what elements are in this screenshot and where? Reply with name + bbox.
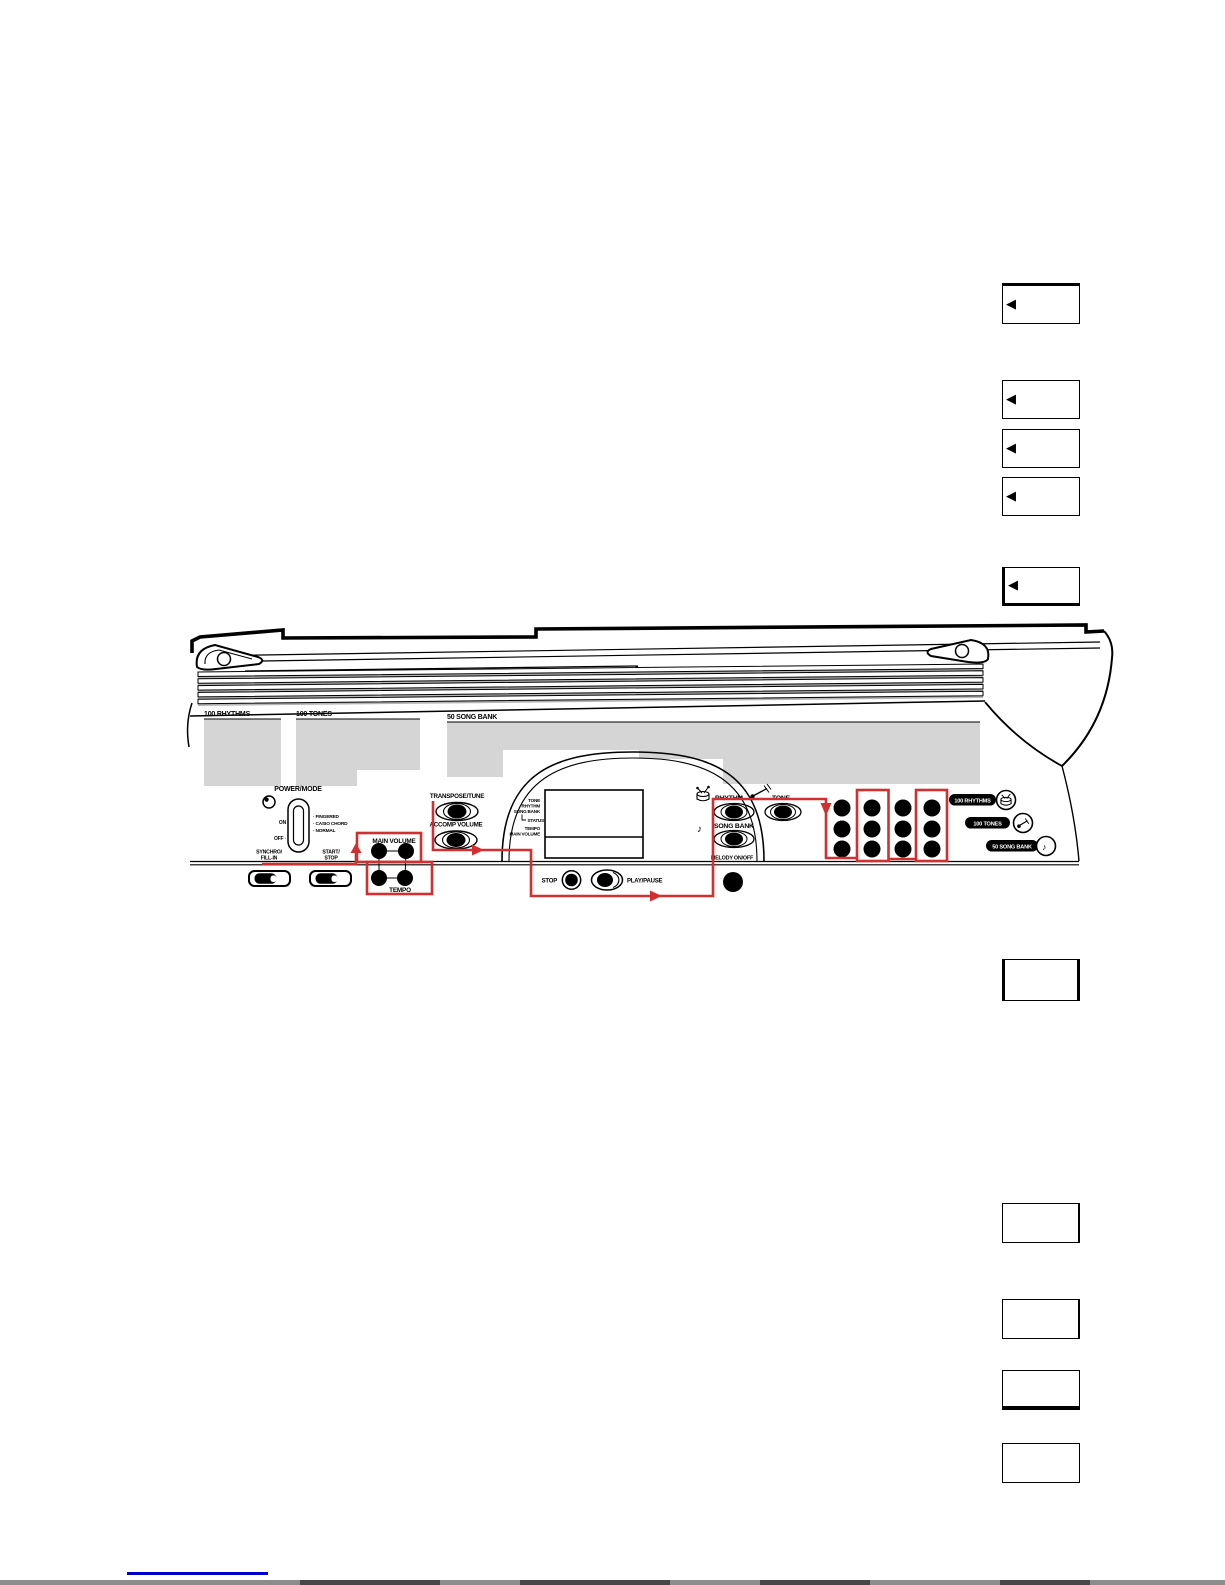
accomp-volume-label: ACCOMP VOLUME <box>430 822 483 829</box>
svg-text:50 SONG BANK: 50 SONG BANK <box>992 845 1032 851</box>
note-icon: ♪ <box>697 824 702 835</box>
main-volume-up-button <box>371 843 387 859</box>
display-main-volume-label: MAIN VOLUME <box>510 832 541 837</box>
svg-text:100 RHYTHMS: 100 RHYTHMS <box>954 799 991 805</box>
pill-100-tones: 100 TONES <box>965 814 1033 833</box>
volume-tempo-section: MAIN VOLUME TEMPO <box>371 838 417 894</box>
play-pause-label: PLAY/PAUSE <box>627 879 663 885</box>
section-label-rhythms: 100 RHYTHMS <box>204 711 251 718</box>
song-bank-button <box>714 831 754 848</box>
transport-section: STOP PLAY/PAUSE <box>542 870 663 890</box>
section-label-song-bank: 50 SONG BANK <box>447 714 497 721</box>
right-hinge <box>928 640 989 663</box>
trumpet-icon <box>750 784 771 799</box>
left-hinge <box>197 645 263 670</box>
lcd-display <box>545 790 643 858</box>
accomp-volume-button <box>435 831 477 849</box>
drum-icon <box>696 786 710 801</box>
synchro-fill-in-button <box>249 871 290 886</box>
mode-casio-chord-label: · CASIO CHORD <box>313 821 348 827</box>
start-stop-label2: STOP <box>324 856 338 862</box>
power-mode-section: POWER/MODE ON OFF · · FINGERED · CASIO C… <box>263 786 348 852</box>
mode-fingered-label: · FINGERED <box>313 814 339 820</box>
display-tempo-label: TEMPO <box>525 826 541 831</box>
transpose-tune-label: TRANSPOSE/TUNE <box>430 793 484 800</box>
main-volume-down-button <box>398 843 414 859</box>
song-bank-label: SONG BANK <box>714 823 754 830</box>
footer-link-underline[interactable] <box>127 1572 268 1575</box>
power-off-label: OFF · <box>274 836 287 842</box>
power-mode-switch <box>288 799 309 852</box>
power-mode-label: POWER/MODE <box>274 786 322 793</box>
transpose-accomp-section: TRANSPOSE/TUNE ACCOMP VOLUME <box>430 793 485 849</box>
page-bottom-edge <box>0 1580 1225 1585</box>
stop-button <box>562 871 580 889</box>
display-status-label: STATUS <box>528 818 545 823</box>
start-stop-button <box>310 871 351 886</box>
svg-text:100 TONES: 100 TONES <box>973 822 1002 828</box>
number-button-grid <box>834 800 941 858</box>
synchro-label2: FILL-IN <box>261 856 278 862</box>
section-panels: 100 RHYTHMS 100 TONES 50 SONG BANK <box>204 711 980 786</box>
keyboard-panel-illustration: 100 RHYTHMS 100 TONES 50 SONG BANK POWER… <box>0 0 1225 1585</box>
stop-label: STOP <box>542 879 558 885</box>
right-pill-labels: 100 RHYTHMS 100 TONES <box>949 791 1056 856</box>
display-song-bank-label: SONG BANK <box>514 809 541 814</box>
power-led <box>263 796 275 808</box>
pill-100-rhythms: 100 RHYTHMS <box>949 791 1016 810</box>
section-label-tones: 100 TONES <box>296 711 332 718</box>
note-icon: ♪ <box>1042 842 1047 852</box>
pill-50-song-bank: 50 SONG BANK ♪ <box>986 837 1056 856</box>
tone-button <box>765 804 801 821</box>
power-on-label: ON <box>279 820 287 826</box>
rhythm-control-buttons: SYNCHRO/ FILL-IN START/ STOP <box>249 850 351 887</box>
tempo-up-button <box>371 870 387 886</box>
melody-on-off-button <box>723 872 743 892</box>
mode-normal-label: · NORMAL <box>313 828 336 834</box>
melody-on-off-label: MELODY ON/OFF <box>711 856 754 862</box>
manual-page: ◀ ◀ ◀ ◀ ◀ <box>0 0 1225 1585</box>
transpose-tune-button <box>436 803 478 821</box>
speaker-slats <box>198 664 983 706</box>
display-rhythm-label: RHYTHM <box>522 804 541 809</box>
display-tone-label: TONE <box>528 798 540 803</box>
play-pause-button <box>592 870 623 890</box>
tempo-down-button <box>397 870 413 886</box>
